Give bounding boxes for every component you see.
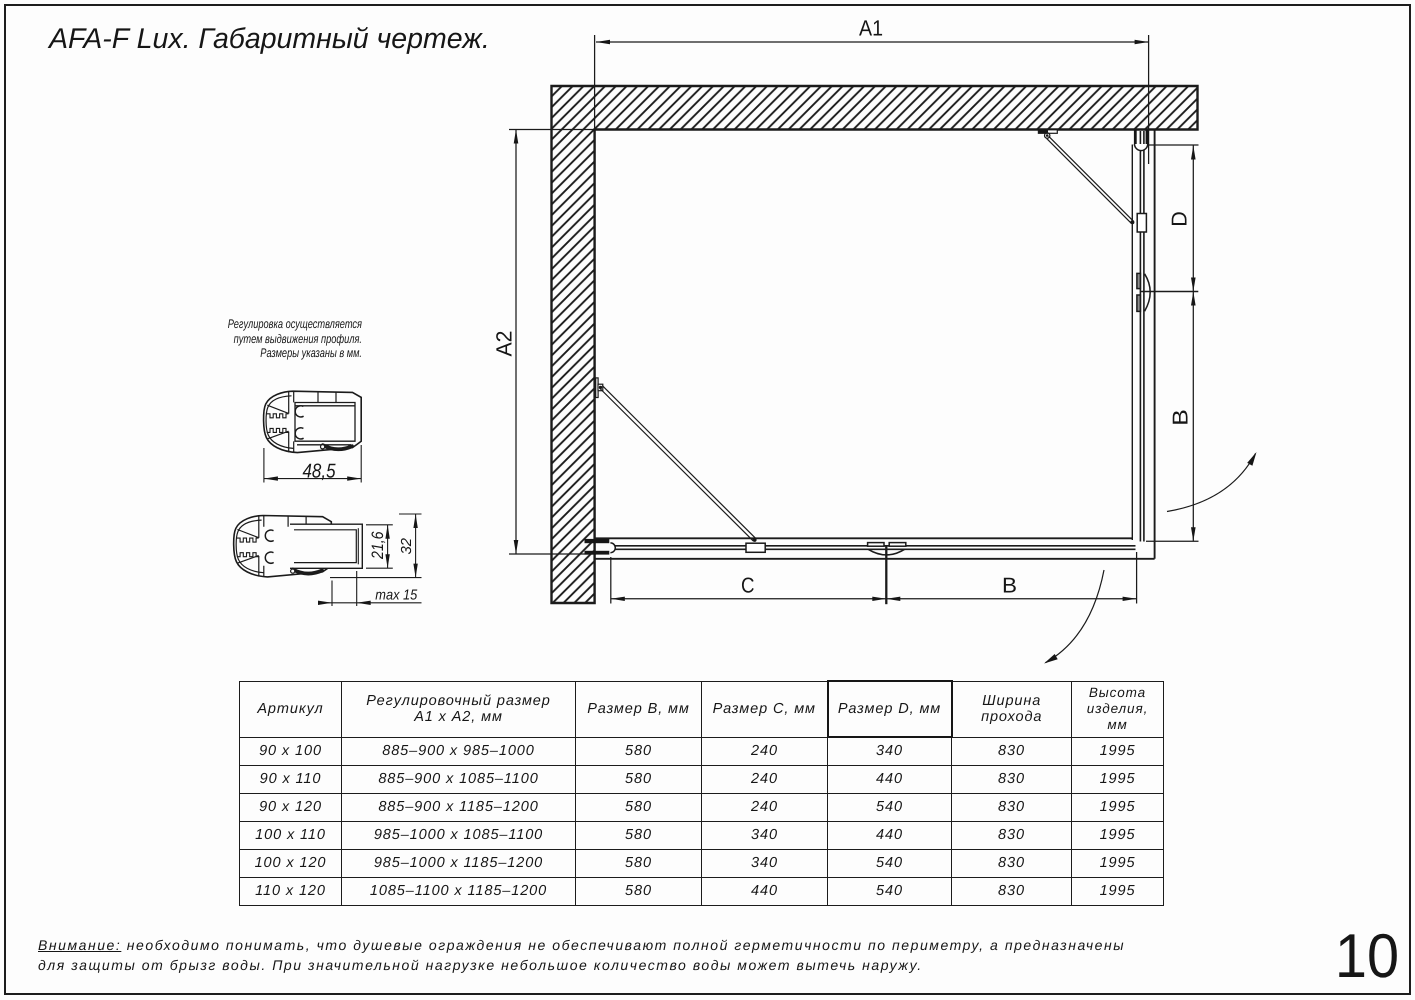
svg-text:B: B: [1002, 573, 1017, 597]
svg-text:48,5: 48,5: [303, 460, 337, 482]
svg-text:B: B: [1169, 409, 1193, 426]
svg-text:32: 32: [399, 538, 415, 555]
svg-text:A1: A1: [859, 16, 883, 41]
svg-text:D: D: [1168, 211, 1192, 227]
svg-text:max 15: max 15: [375, 588, 418, 604]
svg-text:A2: A2: [491, 331, 516, 357]
svg-text:21,6: 21,6: [369, 531, 387, 560]
svg-text:C: C: [741, 573, 755, 597]
